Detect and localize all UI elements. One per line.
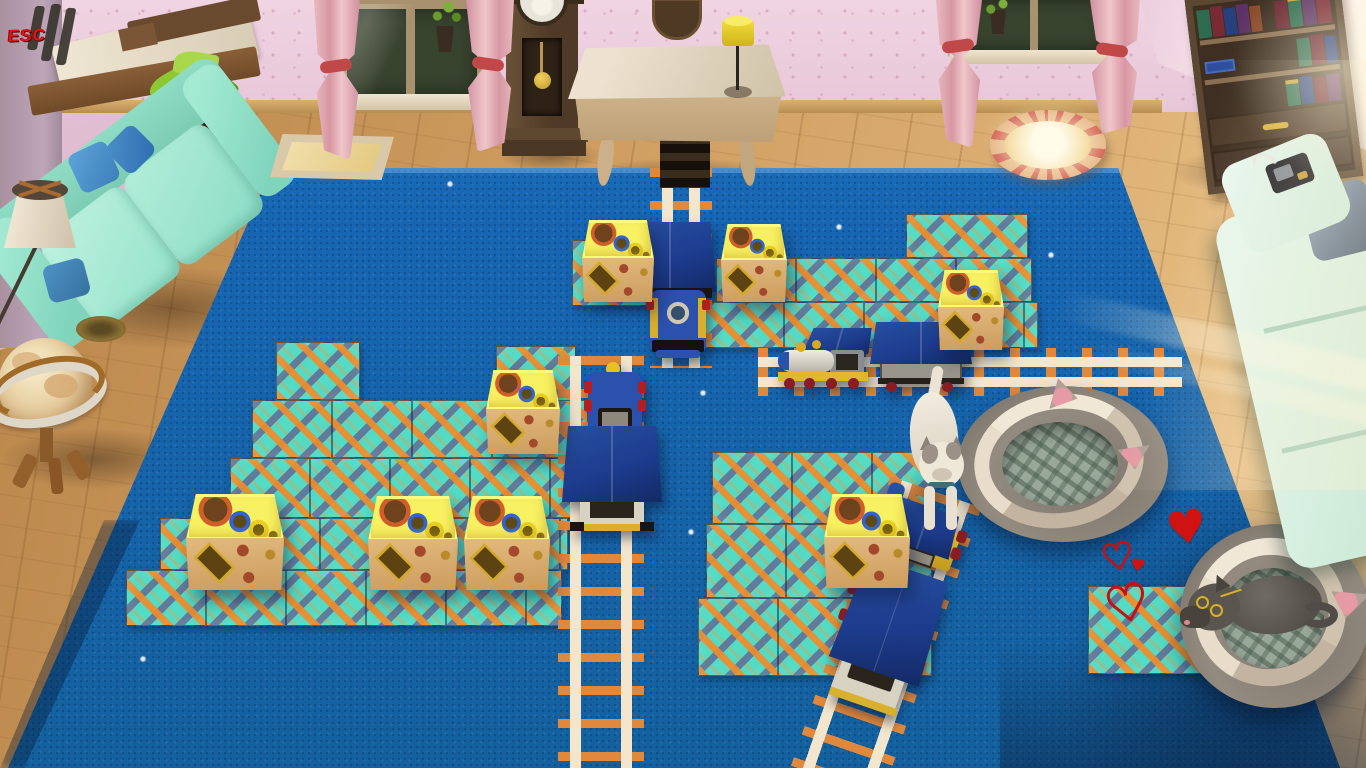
game-scene: ♥ ♥ ♥ ♥ [0, 0, 1366, 768]
sparkle [700, 390, 706, 396]
sparkle [836, 224, 842, 230]
round-pet-cushion [990, 110, 1106, 180]
desk [568, 34, 786, 190]
sparkle [140, 656, 146, 662]
cheese-block[interactable] [186, 494, 284, 590]
sunlight-wash [1120, 60, 1366, 490]
toy-train-engine-middle[interactable] [778, 328, 874, 392]
white-cat[interactable] [898, 366, 970, 546]
wagon [580, 426, 646, 536]
sparkle [688, 529, 694, 535]
cat-glasses [1196, 596, 1209, 609]
cheese-block[interactable] [582, 220, 654, 302]
cat-glasses [1210, 604, 1223, 617]
cheese-block[interactable] [486, 370, 560, 454]
gray-cat[interactable] [1180, 566, 1340, 652]
sparkle [1048, 252, 1054, 258]
globe [0, 322, 138, 492]
window-left [314, 0, 514, 170]
engine-body [646, 290, 710, 360]
sill-plant-leaves [980, 0, 1016, 18]
cheese-block[interactable] [938, 270, 1004, 350]
curtain [936, 0, 982, 148]
sparkle [447, 181, 453, 187]
cheese-block[interactable] [721, 224, 787, 302]
cheese-block[interactable] [368, 496, 458, 590]
hud: ESC [0, 0, 150, 80]
quilt-tile [276, 342, 360, 400]
cat-nose [1184, 620, 1190, 625]
toy-train-bottom[interactable] [560, 360, 662, 536]
sill-plant-leaves [426, 0, 464, 28]
quilt-tile [906, 214, 1028, 258]
heart-icon: ♥ [1163, 501, 1210, 552]
cheese-block[interactable] [464, 496, 550, 590]
esc-button[interactable]: ESC [7, 25, 47, 46]
